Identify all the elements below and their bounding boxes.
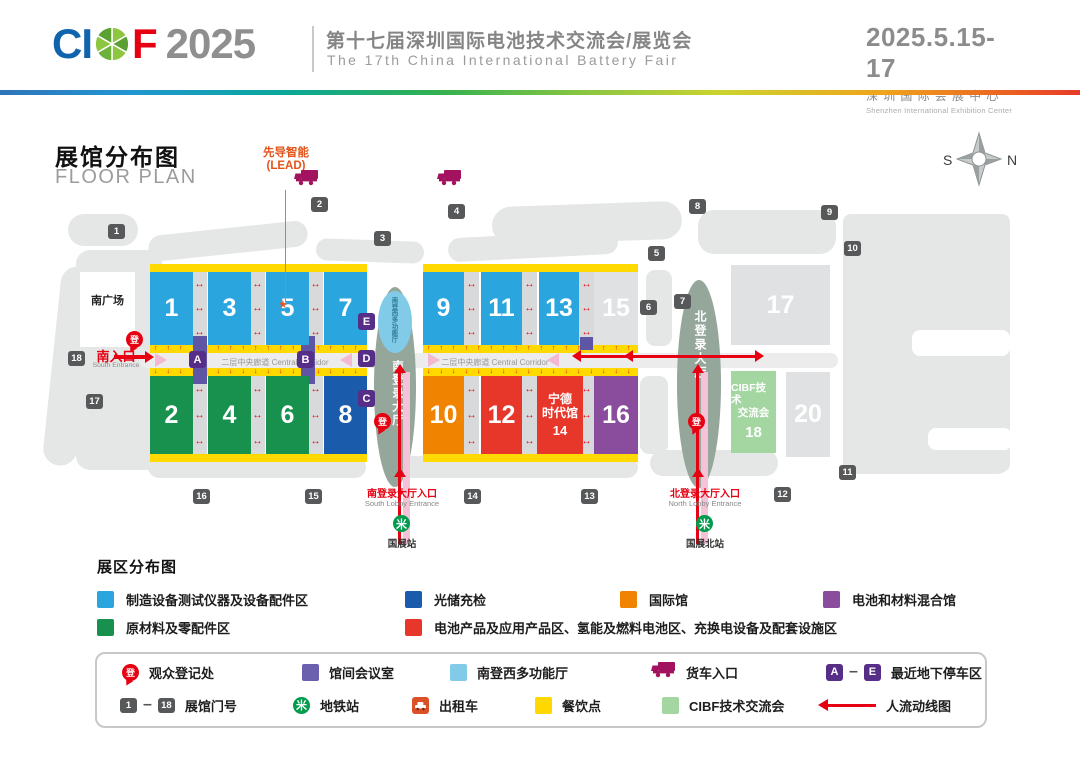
metro-station-south-label: 国展站 [376, 536, 428, 550]
yellow-strip [150, 454, 367, 462]
gate-badge-1: 1 [108, 224, 125, 239]
compass-s: S [943, 152, 952, 168]
road-shape [640, 376, 668, 454]
lead-label: 先导智能 (LEAD) [248, 144, 324, 172]
hall-10: 10 [423, 376, 464, 454]
logo-text-f: F [132, 20, 157, 68]
range-dash: – [849, 663, 858, 681]
yellow-strip [423, 454, 638, 462]
legend-item-label: 地铁站 [320, 696, 359, 715]
road-shape [491, 201, 682, 246]
parking-badge-e: E [358, 313, 375, 330]
road-cutout [912, 330, 1010, 356]
legend-item: 馆间会议室 [302, 662, 394, 682]
legend-item-label: 展馆门号 [185, 696, 237, 715]
zone-legend-item: 国际馆 [620, 590, 688, 609]
legend-item: CIBF技术交流会 [662, 695, 784, 715]
lead-star-marker: ★ [278, 298, 288, 311]
corridor-label-east: 二层中央廊道 Central Corridor [420, 357, 570, 368]
cibf-leaf-icon [93, 25, 131, 63]
hall-7: 7 [324, 272, 367, 345]
hall-1: 1 [150, 272, 193, 345]
gate-badge-1-icon: 1 [120, 698, 137, 713]
hall-connector: ↔↔↔ [522, 272, 537, 345]
corridor-up-arrows: ↑↑↑↑↑↑↑↑↑↑↑↑↑↑↑↑↑↑ [154, 345, 363, 353]
gate-badge-8: 8 [689, 199, 706, 214]
truck-icon-1 [436, 169, 462, 191]
registration-pin-1: 登 [374, 413, 391, 430]
truck-icon-0 [293, 169, 319, 191]
range-dash: – [143, 696, 152, 714]
zone-label: 电池和材料混合馆 [852, 590, 956, 609]
compass-n: N [1007, 152, 1017, 168]
gate-badge-5: 5 [648, 246, 665, 261]
page: CI F 2025 第十七届深圳国际电池技术交流会/展览会 The 17th [0, 0, 1080, 764]
road-shape [316, 238, 425, 264]
legend-item: A–E最近地下停车区 [826, 662, 982, 682]
gate-badge-15: 15 [305, 489, 322, 504]
flow-arrowhead [624, 350, 633, 362]
road-shape [698, 210, 836, 254]
parking-badge-d: D [358, 350, 375, 367]
south-lobby-entrance-cn: 南登录大厅入口 [352, 485, 452, 500]
zone-color-swatch [405, 591, 422, 608]
metro-icon-north: 米 [696, 515, 713, 532]
gate-badge-18-icon: 18 [158, 698, 175, 713]
legend-color-swatch [662, 697, 679, 714]
header-dates-block: 2025.5.15-17 深圳国际会展中心 Shenzhen Internati… [866, 22, 1018, 115]
legend-item-label: 最近地下停车区 [891, 663, 982, 682]
gate-badge-9: 9 [821, 205, 838, 220]
header-divider [312, 26, 314, 72]
zone-color-swatch [823, 591, 840, 608]
lead-pointer-line [285, 190, 286, 302]
gate-badge-7: 7 [674, 294, 691, 309]
hall-4: 4 [208, 376, 251, 454]
legend-item-label: CIBF技术交流会 [689, 696, 784, 715]
flow-arrowhead [692, 364, 704, 373]
rainbow-divider [0, 90, 1080, 95]
south-lobby-entrance-en: South Lobby Entrance [352, 499, 452, 508]
flow-arrowhead [692, 468, 704, 477]
parking-badge-b: B [297, 351, 314, 368]
zone-legend-item: 电池和材料混合馆 [823, 590, 956, 609]
zone-color-swatch [97, 619, 114, 636]
hall-connector: ↔↔↔ [464, 376, 479, 454]
flow-arrowhead [755, 350, 764, 362]
corridor-label-west: 二层中央廊道 Central Corridor [200, 357, 350, 368]
fair-title-en: The 17th China International Battery Fai… [327, 52, 678, 68]
taxi-icon [412, 697, 429, 714]
plan-title-en: FLOOR PLAN [55, 166, 197, 189]
legend-item: 出租车 [412, 695, 478, 715]
zone-legend-item: 光储充检 [405, 590, 486, 609]
legend-item-label: 货车入口 [686, 663, 738, 682]
legend-color-swatch [535, 697, 552, 714]
logo-text-year: 2025 [166, 20, 255, 68]
gate-badge-11: 11 [839, 465, 856, 480]
zone-label: 制造设备测试仪器及设备配件区 [126, 590, 308, 609]
metro-icon: 米 [293, 697, 310, 714]
zone-color-swatch [405, 619, 422, 636]
zone-label: 光储充检 [434, 590, 486, 609]
legend-item-label: 餐饮点 [562, 696, 601, 715]
gate-badge-13: 13 [581, 489, 598, 504]
road-shape [68, 214, 138, 246]
legend-item: 南登西多功能厅 [450, 662, 568, 682]
south-entrance-en: South Entrance [88, 362, 144, 369]
registration-pin-2: 登 [688, 413, 705, 430]
zone-label: 电池产品及应用产品区、氢能及燃料电池区、充换电设备及配套设施区 [434, 618, 837, 637]
flow-arrow-icon [818, 699, 876, 711]
legend-item-label: 南登西多功能厅 [477, 663, 568, 682]
corridor-flow-chevron [155, 353, 167, 367]
legend-color-swatch [450, 664, 467, 681]
legend-item: 人流动线图 [818, 695, 951, 715]
legend-item-label: 人流动线图 [886, 696, 951, 715]
legend-item-label: 观众登记处 [149, 663, 214, 682]
hall-12: 12 [481, 376, 522, 454]
flow-arrowhead [394, 468, 406, 477]
hall-18: CIBF技术交流会18 [731, 371, 776, 453]
gate-badge-10: 10 [844, 241, 861, 256]
hall-6: 6 [266, 376, 309, 454]
hall-13: 13 [539, 272, 579, 345]
north-lobby-entrance-en: North Lobby Entrance [655, 499, 755, 508]
yellow-strip [423, 264, 638, 272]
fair-title-cn: 第十七届深圳国际电池技术交流会/展览会 [326, 26, 692, 53]
legend-item: 餐饮点 [535, 695, 601, 715]
gate-badge-2: 2 [311, 197, 328, 212]
zone-legend-item: 电池产品及应用产品区、氢能及燃料电池区、充换电设备及配套设施区 [405, 618, 837, 637]
gate-badge-12: 12 [774, 487, 791, 502]
north-lobby-entrance-cn: 北登录大厅入口 [655, 485, 755, 500]
zone-label: 国际馆 [649, 590, 688, 609]
hall-connector: ↔↔↔ [522, 376, 537, 454]
hall-8: 8 [324, 376, 367, 454]
hall-11: 11 [481, 272, 522, 345]
zone-color-swatch [620, 591, 637, 608]
road-cutout [928, 428, 1012, 450]
hall-20: 20 [786, 372, 830, 457]
logo-text-ci: CI [52, 20, 92, 68]
corridor-down-arrows: ↓↓↓↓↓↓↓↓↓↓↓↓↓↓↓↓↓↓ [154, 368, 363, 376]
gate-badge-14: 14 [464, 489, 481, 504]
metro-icon-south: 米 [393, 515, 410, 532]
gate-badge-3: 3 [374, 231, 391, 246]
metro-station-north-label: 国展北站 [672, 536, 738, 550]
hall-connector: ↔↔↔ [308, 376, 323, 454]
legend-item-label: 馆间会议室 [329, 663, 394, 682]
parking-badge-c: C [358, 390, 375, 407]
hall-connector: ↔↔↔ [464, 272, 479, 345]
zone-legend-item: 制造设备测试仪器及设备配件区 [97, 590, 308, 609]
hall-connector: ↔↔↔ [250, 272, 265, 345]
lead-label-cn: 先导智能 [248, 144, 324, 160]
zone-label: 原材料及零配件区 [126, 618, 230, 637]
road-shape [845, 448, 1010, 474]
cibf-logo: CI F 2025 [52, 20, 255, 68]
gate-badge-16: 16 [193, 489, 210, 504]
flow-arrowhead [394, 364, 406, 373]
truck-icon [650, 661, 676, 683]
fair-dates: 2025.5.15-17 [866, 22, 1018, 84]
venue-en: Shenzhen International Exhibition Center [866, 106, 1018, 115]
south-plaza-label: 南广场 [80, 292, 135, 308]
corridor-up-arrows: ↑↑↑↑↑↑↑↑↑↑↑↑↑↑↑↑↑↑ [427, 345, 634, 353]
legend-item: 米地铁站 [293, 695, 359, 715]
hall-connector: ↔↔↔ [579, 272, 594, 345]
hall-15: 15 [594, 272, 638, 345]
zone-legend-item: 原材料及零配件区 [97, 618, 230, 637]
corridor-down-arrows: ↓↓↓↓↓↓↓↓↓↓↓↓↓↓↓↓↓↓ [427, 368, 634, 376]
parking-link [580, 337, 593, 350]
south-entrance-arrowhead [145, 351, 154, 363]
multifunction-hall-label: 南登西多功能厅 [388, 297, 398, 343]
legend-color-swatch [302, 664, 319, 681]
gate-badge-4: 4 [448, 204, 465, 219]
flow-line-east [580, 355, 758, 358]
hall-connector: ↔↔↔ [192, 272, 207, 345]
hall-connector: ↔↔↔ [192, 376, 207, 454]
zone-color-swatch [97, 591, 114, 608]
yellow-strip [150, 264, 367, 272]
gate-badge-6: 6 [640, 300, 657, 315]
parking-badge-e-icon: E [864, 664, 881, 681]
legend-item: 登观众登记处 [122, 662, 214, 682]
legend-item: 货车入口 [650, 662, 738, 682]
legend-item: 1–18展馆门号 [120, 695, 237, 715]
zones-legend-title: 展区分布图 [97, 556, 177, 577]
hall-3: 3 [208, 272, 251, 345]
hall-connector: ↔↔↔ [308, 272, 323, 345]
legend-item-label: 出租车 [439, 696, 478, 715]
hall-16: 16 [594, 376, 638, 454]
parking-badge-a: A [189, 351, 206, 368]
flow-arrowhead [572, 350, 581, 362]
gate-badge-17: 17 [86, 394, 103, 409]
hall-9: 9 [423, 272, 464, 345]
parking-badge-a-icon: A [826, 664, 843, 681]
hall-14: 宁德时代馆14 [537, 376, 583, 454]
hall-17: 17 [731, 265, 830, 345]
gate-badge-18: 18 [68, 351, 85, 366]
compass-icon: S N [935, 130, 1023, 188]
hall-2: 2 [150, 376, 193, 454]
hall-connector: ↔↔↔ [250, 376, 265, 454]
registration-pin-0: 登 [126, 331, 143, 348]
registration-pin-icon: 登 [122, 664, 139, 681]
